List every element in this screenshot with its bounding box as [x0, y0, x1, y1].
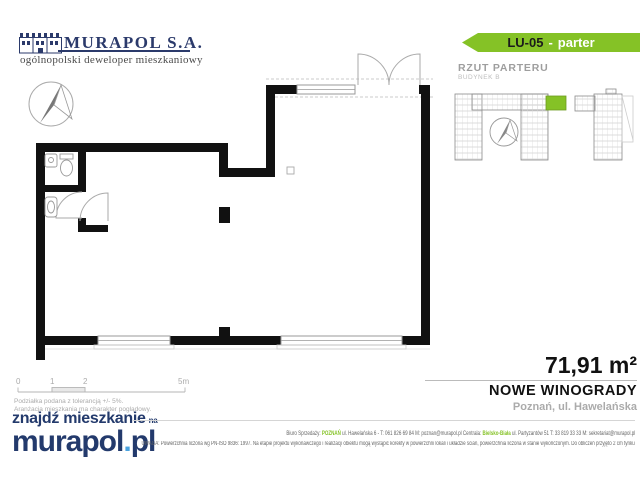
overview-title: RZUT PARTERU [458, 62, 548, 74]
unit-area: 71,91 m² [425, 353, 637, 377]
floor-plan-drawing [0, 40, 460, 380]
washbasin-icon [45, 197, 57, 217]
scale-note-tolerance: Podziałka podana z tolerancją +/- 5%. [14, 398, 151, 406]
unit-divider [425, 380, 637, 381]
banner-separator: - [548, 35, 552, 50]
walls [36, 85, 430, 360]
building-overview-map [443, 86, 638, 186]
unit-number: LU-05 [507, 35, 543, 50]
toilet-icon [61, 160, 73, 176]
building-wings [455, 89, 622, 160]
compass-icon [29, 82, 73, 126]
overview-compass-icon [490, 118, 518, 146]
unit-info: 71,91 m² NOWE WINOGRADY Poznań, ul. Hawe… [425, 353, 637, 413]
footer-legal-note: UWAGA: Powierzchnia liczona wg PN-ISO 98… [142, 441, 635, 447]
scale-bar: 0 1 2 5m [10, 374, 210, 398]
scale-tick-5m: 5m [178, 377, 189, 386]
scale-tick-2: 2 [83, 377, 88, 386]
hq-city: Bielsko-Biała [482, 431, 510, 437]
doors [56, 54, 420, 221]
brand-domain: murapol.pl [12, 428, 157, 457]
footer-divider [133, 420, 635, 421]
brand-block: znajdź mieszkaniena murapol.pl [12, 410, 157, 457]
unit-banner: LU-05 - parter [462, 33, 640, 52]
unit-address: Poznań, ul. Hawelańska [425, 401, 637, 413]
scale-tick-1: 1 [50, 377, 55, 386]
neighbor-building-outline [622, 96, 633, 142]
windows [94, 85, 406, 349]
floorplan-page: MURAPOL S.A. ogólnopolski deweloper mies… [0, 0, 640, 480]
interior-door [80, 193, 108, 221]
sales-office-city: POZNAŃ [322, 431, 341, 437]
toilet-tank-icon [60, 154, 73, 159]
column-marker [287, 167, 294, 174]
sink-icon [45, 154, 57, 167]
floor-name: parter [558, 35, 595, 50]
overview-subtitle: BUDYNEK B [458, 74, 500, 81]
entry-double-door-left-leaf [358, 54, 389, 85]
domain-dot: . [123, 425, 130, 458]
highlighted-unit [546, 96, 566, 110]
entry-double-door-right-leaf [389, 54, 420, 85]
footer-contact-line: Biuro Sprzedaży: POZNAŃ ul. Hawelańska 6… [286, 431, 635, 437]
scale-tick-0: 0 [16, 377, 21, 386]
bathroom-door [56, 192, 82, 218]
development-name: NOWE WINOGRADY [425, 383, 637, 399]
